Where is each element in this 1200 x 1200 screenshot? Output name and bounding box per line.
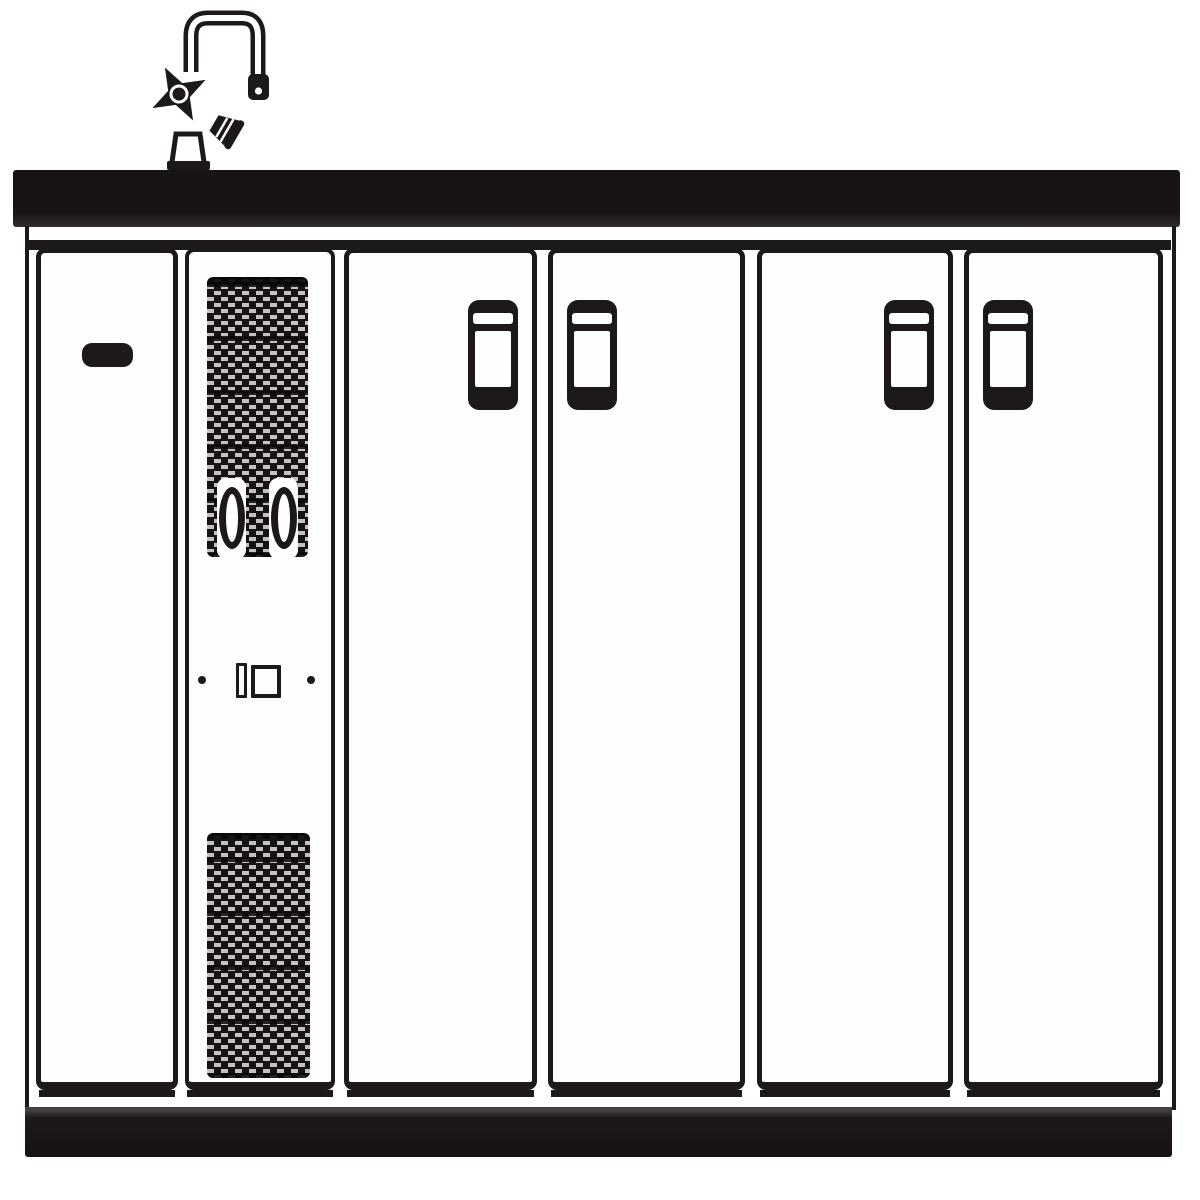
cabinet-left-side [25,226,29,1110]
handle-window [990,331,1026,387]
kick-plate [25,1107,1172,1157]
indicator-dot-right [307,676,315,684]
control-knob-left [217,478,246,559]
door-left-service [36,248,178,1090]
pill-handle [82,343,133,367]
countertop [13,170,1180,227]
handle-window [891,331,927,387]
handle-stripe [988,313,1028,324]
knob-ring-icon [271,487,297,549]
knob-ring-icon [219,487,245,549]
door-handle [884,300,934,410]
handle-window [574,331,610,387]
door-handle [983,300,1033,410]
cabinet-door-2 [344,248,537,1090]
door-handle [468,300,518,410]
cabinet-unit-diagram [0,0,1200,1200]
cabinet-door-3 [548,248,745,1090]
door-handle [567,300,617,410]
vent-panel [185,248,335,1090]
rocker-switch [236,663,247,698]
louvre-grille-lower [207,833,310,1078]
switch-window [251,665,281,698]
control-knob-right [269,478,298,559]
handle-stripe [889,313,929,324]
cabinet-door-5 [964,248,1163,1090]
indicator-dot-left [198,676,206,684]
cabinet-right-side [1172,226,1176,1110]
handle-window [475,331,511,387]
handle-stripe [473,313,513,324]
cabinet-door-4 [757,248,953,1090]
handle-stripe [572,313,612,324]
faucet-icon [146,2,280,172]
